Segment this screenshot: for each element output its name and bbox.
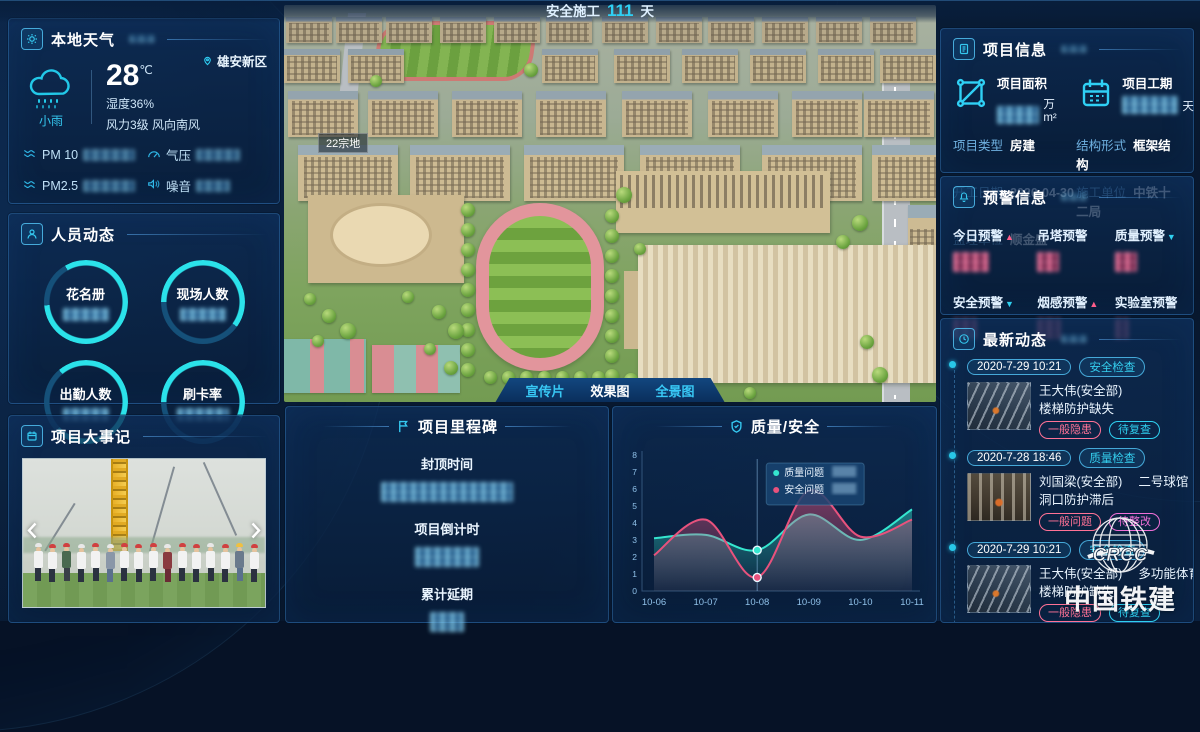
svg-text:10-06: 10-06 <box>641 597 665 608</box>
svg-text:10-08: 10-08 <box>745 597 769 608</box>
school-building <box>616 171 830 233</box>
feed-photo[interactable] <box>967 473 1031 521</box>
photo-person <box>105 544 115 584</box>
building <box>708 91 778 137</box>
quality-safety-panel: 质量/安全 01234567810-0610-0710-0810-0910-10… <box>612 406 937 623</box>
redacted-value <box>997 106 1039 124</box>
air-waves-icon <box>23 178 37 193</box>
crcc-logo-text: 中国铁建 <box>1044 578 1196 617</box>
feed-person: 刘国梁(安全部) <box>1039 473 1122 491</box>
pin-icon <box>202 55 213 66</box>
tree <box>461 283 475 297</box>
redacted-decoration <box>1061 335 1087 343</box>
photo-person <box>47 544 57 584</box>
tree <box>370 75 382 87</box>
project-events-panel: 项目大事记 <box>8 415 280 623</box>
svg-text:10-09: 10-09 <box>796 597 820 608</box>
building <box>536 91 606 137</box>
gauge-icon <box>147 147 161 162</box>
redacted-value <box>415 547 479 567</box>
svg-text:10-07: 10-07 <box>693 597 717 608</box>
panel-title: 最新动态 <box>983 329 1047 350</box>
info-row-structure: 结构形式框架结构 <box>1076 135 1181 173</box>
panel-title: 预警信息 <box>983 187 1047 208</box>
tree <box>744 387 756 399</box>
redacted-decoration <box>129 35 155 43</box>
rain-cloud-icon <box>25 66 77 110</box>
weather-stat-pm10: PM 10 <box>23 145 141 164</box>
tree <box>605 309 619 323</box>
tree <box>461 223 475 237</box>
ring-roster: 花名册 <box>44 260 128 344</box>
building <box>864 91 934 137</box>
svg-text:6: 6 <box>632 484 637 494</box>
tree <box>322 309 336 323</box>
feed-issue: 洞口防护滞后 <box>1039 491 1185 509</box>
building <box>872 145 936 201</box>
document-icon <box>953 38 975 60</box>
photo-person <box>91 543 101 583</box>
redacted-value <box>381 482 513 502</box>
feed-person: 王大伟(安全部) <box>1039 382 1122 400</box>
crane-wire <box>203 462 237 536</box>
divider <box>143 436 267 437</box>
panel-title: 质量/安全 <box>751 416 820 437</box>
panel-title: 本地天气 <box>51 29 115 50</box>
location-selector[interactable]: 雄安新区 <box>202 51 267 70</box>
tree <box>402 291 414 303</box>
air-waves-icon <box>23 147 37 162</box>
bell-icon <box>953 186 975 208</box>
photo-person <box>220 544 230 584</box>
calendar-icon <box>21 425 43 447</box>
redacted-value <box>83 149 135 161</box>
svg-text:4: 4 <box>632 518 637 528</box>
svg-text:0: 0 <box>632 586 637 596</box>
area-unit: 万m² <box>1043 96 1064 124</box>
event-photo[interactable] <box>22 458 266 608</box>
svg-text:3: 3 <box>632 535 637 545</box>
photo-person <box>177 543 187 583</box>
building <box>284 49 340 83</box>
milestone-label-delay: 累计延期 <box>421 584 473 603</box>
photo-person <box>134 544 144 584</box>
building <box>524 145 624 201</box>
school-building <box>308 195 464 283</box>
tree <box>605 249 619 263</box>
view-button-render[interactable]: 效果图 <box>590 381 629 400</box>
tree <box>524 63 538 77</box>
alert-tower-crane: 吊塔预警 <box>1037 225 1115 272</box>
divider <box>323 426 389 427</box>
divider <box>656 426 722 427</box>
alert-quality: 质量预警▼ <box>1115 225 1181 272</box>
divider <box>127 234 267 235</box>
ring-onsite-count: 现场人数 <box>161 260 245 344</box>
building <box>368 91 438 137</box>
building <box>792 91 862 137</box>
safe-days-suffix: 天 <box>641 0 655 23</box>
area-plot-icon <box>953 75 989 111</box>
feed-date-badge: 2020-7-28 18:46 <box>967 450 1071 466</box>
tree <box>860 335 874 349</box>
tree <box>304 293 316 305</box>
photo-person <box>76 544 86 584</box>
tree <box>605 289 619 303</box>
photo-person <box>62 543 72 583</box>
tree <box>484 371 497 384</box>
quality-safety-chart[interactable]: 01234567810-0610-0710-0810-0910-1010-11质… <box>620 439 930 617</box>
person-icon <box>21 223 43 245</box>
wind-label: 风力3级 风向南风 <box>106 116 200 133</box>
redacted-value <box>63 308 109 321</box>
hazard-badge: 一般隐患 <box>1039 421 1101 439</box>
school-building <box>638 245 936 383</box>
carousel-next-icon[interactable] <box>250 522 262 545</box>
alert-today: 今日预警▲ <box>953 225 1037 272</box>
personnel-panel: 人员动态 花名册 现场人数 出勤人数 刷卡率 <box>8 213 280 404</box>
sports-court <box>284 339 366 393</box>
top-header: 安全施工 111 天 <box>0 0 1200 23</box>
building <box>818 49 874 83</box>
info-row-type: 项目类型房建 <box>953 135 1076 173</box>
redacted-value <box>1037 252 1059 272</box>
tree <box>605 229 619 243</box>
photo-person <box>163 544 173 584</box>
view-button-promo[interactable]: 宣传片 <box>525 381 564 400</box>
calendar-icon <box>1078 75 1114 111</box>
redacted-value <box>1122 96 1178 114</box>
milestone-panel: 项目里程碑 封顶时间 项目倒计时 累计延期 <box>285 406 609 623</box>
tree <box>461 303 475 317</box>
feed-issue: 楼梯防护缺失 <box>1039 400 1160 418</box>
redacted-value <box>953 252 989 272</box>
view-button-panorama[interactable]: 全景图 <box>656 381 695 400</box>
building <box>750 49 806 83</box>
weather-stat-noise: 噪音 <box>147 176 265 195</box>
tree <box>461 203 475 217</box>
tree <box>461 363 475 377</box>
tree <box>461 263 475 277</box>
redacted-value <box>430 612 464 632</box>
divider <box>827 426 893 427</box>
tree <box>340 323 356 339</box>
divider <box>505 426 571 427</box>
tree <box>852 215 868 231</box>
safe-days-prefix: 安全施工 <box>546 0 600 23</box>
building <box>298 145 398 201</box>
redacted-value <box>1115 252 1137 272</box>
building <box>410 145 510 201</box>
view-switch-bar: 宣传片 效果图 全景图 <box>495 378 724 402</box>
svg-text:质量问题: 质量问题 <box>784 466 824 479</box>
weather-condition: 小雨 <box>39 112 63 129</box>
weather-stat-pressure: 气压 <box>147 145 265 164</box>
divider <box>1099 197 1181 198</box>
svg-text:5: 5 <box>632 501 637 511</box>
panel-title: 项目信息 <box>983 39 1047 60</box>
divider <box>167 39 267 40</box>
svg-text:8: 8 <box>632 450 637 460</box>
svg-text:1: 1 <box>632 569 637 579</box>
status-badge: 待复查 <box>1109 421 1160 439</box>
tree <box>461 243 475 257</box>
tree <box>836 235 850 249</box>
redacted-value <box>83 180 135 192</box>
shield-check-icon <box>729 419 744 434</box>
photo-person <box>33 543 43 583</box>
tree <box>444 361 458 375</box>
svg-text:安全问题: 安全问题 <box>784 483 824 496</box>
photo-person <box>148 543 158 583</box>
location-label: 雄安新区 <box>217 51 267 70</box>
flag-icon <box>396 419 411 434</box>
redacted-value <box>180 308 226 321</box>
photo-person <box>235 543 245 583</box>
svg-text:10-11: 10-11 <box>900 597 924 608</box>
divider <box>91 70 92 124</box>
photo-person <box>206 543 216 583</box>
duration-unit: 天 <box>1182 98 1194 114</box>
tree <box>432 305 446 319</box>
feed-type-badge: 质量检查 <box>1079 448 1145 468</box>
feed-item: 2020-7-29 10:21 安全检查 王大伟(安全部) 楼梯防护缺失 一般隐… <box>967 357 1185 439</box>
redacted-decoration <box>1061 193 1087 201</box>
land-parcel-label: 22宗地 <box>318 133 368 153</box>
aerial-scene <box>284 5 936 402</box>
redacted-decoration <box>1061 45 1087 53</box>
tree <box>634 243 646 255</box>
weather-panel: 本地天气 雄安新区 小雨 28℃ 湿度36% <box>8 18 280 204</box>
svg-text:10-10: 10-10 <box>848 597 872 608</box>
feed-location: 二号球馆 <box>1138 473 1188 491</box>
project-area-stat: 项目面积 万m² <box>953 73 1064 124</box>
tree <box>605 269 619 283</box>
panel-title: 人员动态 <box>51 224 115 245</box>
redacted-value <box>196 149 240 161</box>
temperature-value: 28℃ <box>106 61 200 91</box>
svg-text:7: 7 <box>632 467 637 477</box>
humidity-label: 湿度36% <box>106 95 200 112</box>
clock-icon <box>953 328 975 350</box>
divider <box>1099 339 1181 340</box>
aerial-model-view[interactable]: 22宗地 宣传片 效果图 全景图 <box>284 5 936 402</box>
feed-type-badge: 安全检查 <box>1079 357 1145 377</box>
feed-photo[interactable] <box>967 382 1031 430</box>
project-duration-stat: 项目工期 天 <box>1078 73 1194 124</box>
weather-stat-pm25: PM2.5 <box>23 176 141 195</box>
crcc-logo: CRCC 中国铁建 <box>1044 511 1196 617</box>
building <box>614 49 670 83</box>
safe-days-count: 111 <box>607 1 634 21</box>
panel-title: 项目里程碑 <box>418 416 498 437</box>
milestone-label-topping: 封顶时间 <box>421 454 473 473</box>
sun-icon <box>21 28 43 50</box>
panel-title: 项目大事记 <box>51 426 131 447</box>
feed-date-badge: 2020-7-29 10:21 <box>967 359 1071 375</box>
tree <box>605 349 619 363</box>
carousel-prev-icon[interactable] <box>26 522 38 545</box>
tree <box>605 209 619 223</box>
speaker-icon <box>147 178 161 193</box>
redacted-value <box>196 180 230 192</box>
svg-text:CRCC: CRCC <box>1093 545 1148 566</box>
alerts-panel: 预警信息 今日预警▲ 吊塔预警 质量预警▼ 安全预警▼ 烟感预警▲ 实验室预警 <box>940 176 1194 315</box>
project-info-panel: 项目信息 项目面积 万m² <box>940 28 1194 173</box>
tree <box>616 187 632 203</box>
feed-photo[interactable] <box>967 565 1031 613</box>
running-track <box>476 203 604 371</box>
building <box>288 91 358 137</box>
tree <box>448 323 464 339</box>
photo-person <box>249 544 259 584</box>
photo-person <box>119 543 129 583</box>
divider <box>1099 49 1181 50</box>
tree <box>312 335 324 347</box>
svg-text:2: 2 <box>632 552 637 562</box>
photo-person <box>191 544 201 584</box>
building <box>452 91 522 137</box>
temperature-unit: ℃ <box>139 63 152 77</box>
tree <box>424 343 436 355</box>
building <box>542 49 598 83</box>
building <box>880 49 936 83</box>
building <box>682 49 738 83</box>
tree <box>461 343 475 357</box>
building <box>622 91 692 137</box>
milestone-label-countdown: 项目倒计时 <box>414 519 479 538</box>
tree <box>872 367 888 383</box>
tree <box>605 329 619 343</box>
